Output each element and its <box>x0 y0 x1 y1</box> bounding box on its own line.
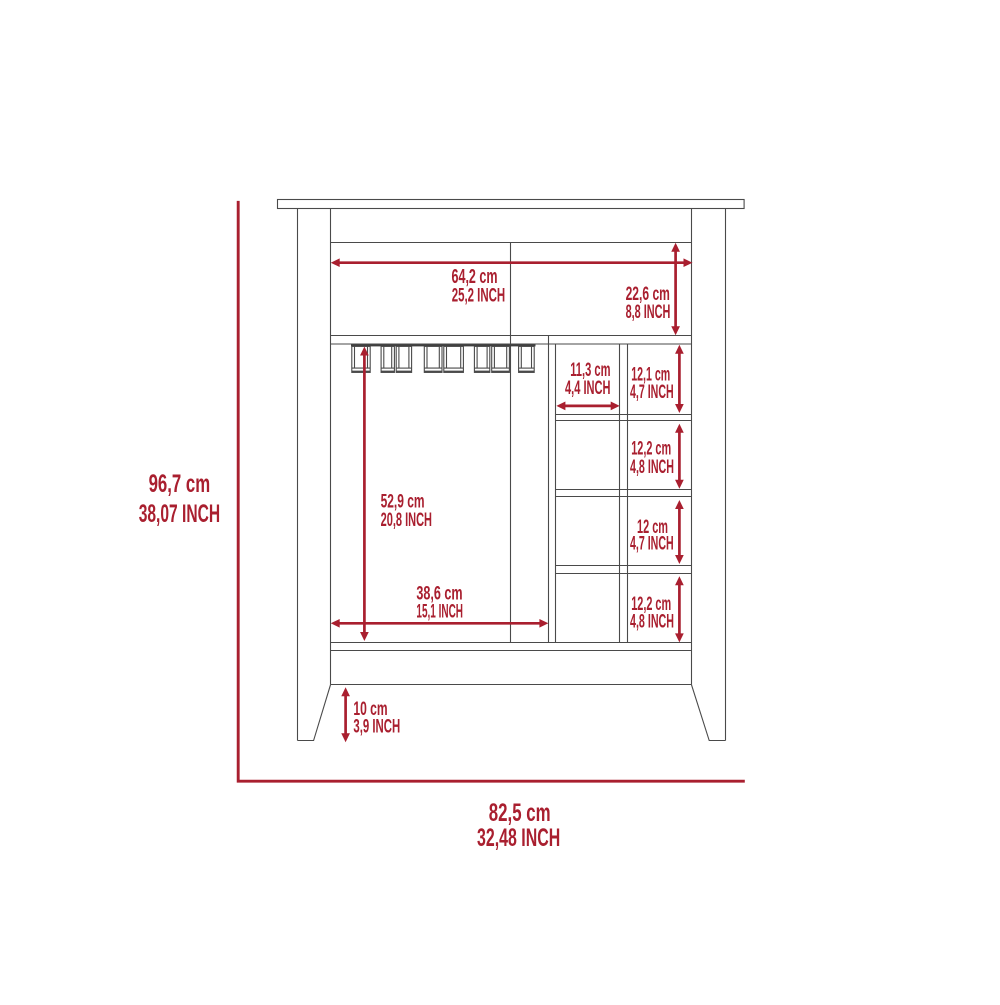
svg-text:3,9 INCH: 3,9 INCH <box>353 717 400 738</box>
svg-text:4,7 INCH: 4,7 INCH <box>630 382 674 403</box>
svg-text:32,48 INCH: 32,48 INCH <box>477 824 560 852</box>
svg-text:4,8 INCH: 4,8 INCH <box>630 457 674 478</box>
svg-text:38,07 INCH: 38,07 INCH <box>139 500 220 528</box>
svg-text:82,5 cm: 82,5 cm <box>489 799 551 827</box>
svg-text:4,7 INCH: 4,7 INCH <box>630 534 674 555</box>
svg-text:96,7 cm: 96,7 cm <box>149 470 211 498</box>
svg-text:15,1 INCH: 15,1 INCH <box>416 601 463 622</box>
svg-text:4,8 INCH: 4,8 INCH <box>630 611 674 632</box>
svg-text:25,2 INCH: 25,2 INCH <box>452 286 506 307</box>
svg-text:20,8 INCH: 20,8 INCH <box>381 510 432 531</box>
svg-text:8,8 INCH: 8,8 INCH <box>626 302 671 323</box>
svg-text:4,4 INCH: 4,4 INCH <box>565 378 611 399</box>
